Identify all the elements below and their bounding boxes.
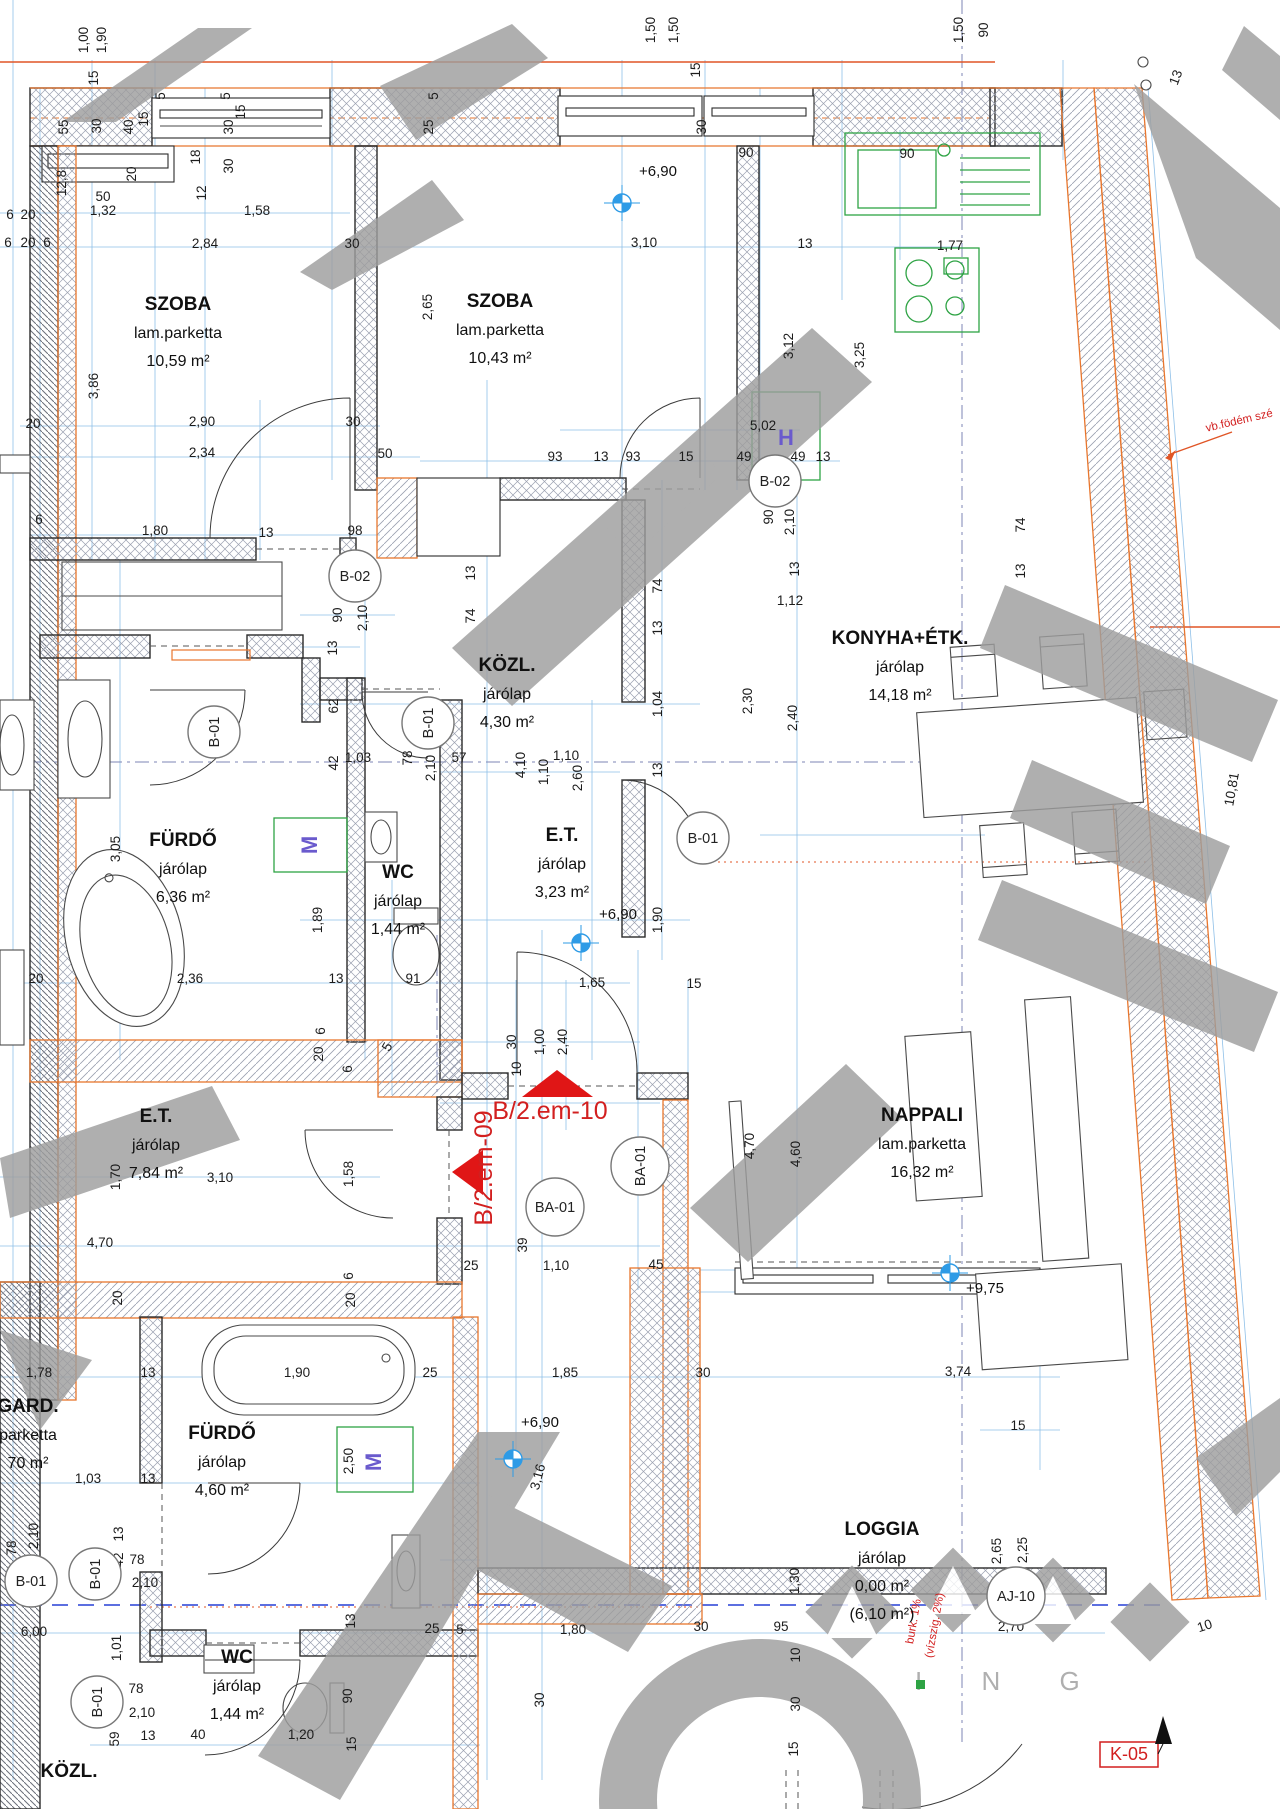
room-area: 4,30 m² bbox=[480, 714, 535, 731]
dimension-label: 1,10 bbox=[536, 759, 551, 785]
unit-label-10: B/2.em-10 bbox=[492, 1097, 607, 1125]
tag-label: B-01 bbox=[688, 831, 719, 847]
dimension-label: 13 bbox=[140, 1728, 155, 1743]
dimension-label: 20 bbox=[124, 166, 139, 181]
floor-plan-page: I N G B/2.em-10 B/2.em-09 K-05 vb.födém … bbox=[0, 0, 1280, 1809]
dimension-label: 10 bbox=[788, 1647, 803, 1662]
dimension-label: 5 bbox=[426, 92, 441, 100]
dimension-label: 93 bbox=[625, 449, 640, 464]
niche bbox=[417, 478, 500, 556]
dimension-label: 40 bbox=[121, 119, 136, 134]
dimension-label: 93 bbox=[547, 449, 562, 464]
dimension-label: 59 bbox=[107, 1731, 122, 1746]
dimension-label: 74 bbox=[650, 578, 665, 594]
dimension-label: 57 bbox=[451, 750, 466, 765]
dimension-label: 49 bbox=[736, 449, 751, 464]
dimension-label: 2,25 bbox=[1015, 1537, 1030, 1563]
dimension-label: 2,60 bbox=[570, 765, 585, 791]
room-floor: járólap bbox=[212, 1678, 261, 1695]
dimension-label: 30 bbox=[788, 1696, 803, 1711]
dimension-label: 1,03 bbox=[345, 750, 371, 765]
dimension-label: 1,03 bbox=[75, 1471, 101, 1486]
room-floor: járólap bbox=[857, 1550, 906, 1567]
level-text: +6,90 bbox=[639, 163, 677, 180]
dimension-label: 1,20 bbox=[288, 1727, 314, 1742]
room-floor: lam.parketta bbox=[456, 322, 544, 339]
dimension-label: 1,00 bbox=[76, 27, 91, 53]
dimension-label: 6 bbox=[6, 207, 14, 222]
room-name: LOGGIA bbox=[845, 1519, 920, 1540]
dimension-label: 13 bbox=[343, 1613, 358, 1628]
dimension-label: 55 bbox=[56, 119, 71, 134]
bathroom1-vanity bbox=[58, 680, 110, 798]
dimension-label: 78 bbox=[128, 1681, 143, 1696]
dimension-label: 25 bbox=[422, 1365, 437, 1380]
dimension-label: 45 bbox=[648, 1257, 663, 1272]
dimension-label: 6 bbox=[35, 512, 43, 527]
dimension-label: 30 bbox=[345, 414, 360, 429]
room-area: 0,00 m² bbox=[855, 1578, 910, 1595]
dimension-label: 1,12 bbox=[777, 593, 803, 608]
tag-label: B-01 bbox=[207, 717, 223, 748]
dimension-label: 20 bbox=[343, 1292, 358, 1307]
dimension-label: 15 bbox=[786, 1741, 801, 1756]
dimension-label: 2,10 bbox=[782, 509, 797, 535]
dimension-label: 1,85 bbox=[552, 1365, 578, 1380]
dimension-label: 30 bbox=[89, 118, 104, 133]
dimension-label: 1,90 bbox=[94, 27, 109, 53]
dimension-label: 1,32 bbox=[90, 203, 116, 218]
dimension-label: 1,10 bbox=[543, 1258, 569, 1273]
level-symbol bbox=[563, 925, 599, 961]
dimension-label: 20 bbox=[110, 1290, 125, 1305]
kitchen-stove bbox=[895, 248, 979, 332]
dimension-label: 1,10 bbox=[553, 748, 579, 763]
dimension-label: 25 bbox=[424, 1621, 439, 1636]
room-name: WC bbox=[382, 862, 414, 883]
dimension-label: 78 bbox=[4, 1540, 19, 1555]
dimension-label: 30 bbox=[344, 236, 359, 251]
dimension-label: 1,50 bbox=[666, 17, 681, 43]
tag-label: B-02 bbox=[340, 569, 371, 585]
dimension-label: 2,36 bbox=[177, 971, 203, 986]
dimension-label: 90 bbox=[340, 1688, 355, 1703]
room-name: KONYHA+ÉTK. bbox=[832, 627, 969, 649]
dimension-label: 2,10 bbox=[129, 1705, 155, 1720]
dimension-label: 90 bbox=[761, 509, 776, 524]
room-floor: járólap bbox=[373, 893, 422, 910]
window-szoba2-right bbox=[704, 96, 814, 136]
dimension-label: 2,50 bbox=[341, 1448, 356, 1474]
dimension-label: 40 bbox=[190, 1727, 205, 1742]
dimension-label: 3,10 bbox=[207, 1170, 233, 1185]
dimension-label: 3,86 bbox=[86, 373, 101, 399]
dimension-label: 6 bbox=[341, 1272, 356, 1280]
dimension-label: 91 bbox=[405, 971, 420, 986]
dimension-label: 10 bbox=[1195, 1616, 1214, 1635]
fridge-letter: H bbox=[778, 425, 794, 450]
dimension-label: 6,00 bbox=[21, 1624, 47, 1639]
room-name: KÖZL. bbox=[41, 1761, 98, 1782]
dimension-label: 13 bbox=[463, 565, 478, 580]
dimension-label: 1,80 bbox=[142, 523, 168, 538]
dimension-label: 1,80 bbox=[560, 1622, 586, 1637]
room-floor: lam.parketta bbox=[878, 1136, 966, 1153]
room-area-gross: (6,10 m²) bbox=[850, 1606, 915, 1623]
dimension-label: 13 bbox=[111, 1526, 126, 1541]
neighbor-fixtures bbox=[0, 455, 34, 1045]
dimension-label: 50 bbox=[377, 446, 392, 461]
dimension-label: 4,10 bbox=[513, 752, 528, 778]
window-szoba2-left bbox=[558, 96, 702, 136]
dimension-label: 90 bbox=[738, 145, 753, 160]
dimension-label: 98 bbox=[347, 523, 362, 538]
tag-label: B-02 bbox=[760, 474, 791, 490]
level-text: +6,90 bbox=[521, 1414, 559, 1431]
slab-edge-note: vb.födém szé bbox=[1205, 408, 1274, 435]
room-name: FÜRDŐ bbox=[149, 829, 217, 851]
room-name: SZOBA bbox=[467, 291, 534, 312]
watermark-ing-text: I N G bbox=[915, 1666, 1106, 1696]
dimension-label: 2,10 bbox=[355, 605, 370, 631]
dimension-label: 1,58 bbox=[341, 1161, 356, 1187]
dimension-label: 2,30 bbox=[740, 688, 755, 714]
room-name: FÜRDŐ bbox=[188, 1422, 256, 1444]
dimension-label: 20 bbox=[20, 207, 35, 222]
dimension-label: 74 bbox=[1013, 517, 1028, 533]
dimension-label: 13 bbox=[787, 561, 802, 576]
room-floor: járólap bbox=[875, 659, 924, 676]
dimension-label: 2,10 bbox=[423, 755, 438, 781]
dimension-label: 1,04 bbox=[650, 690, 665, 717]
dimension-label: 15 bbox=[1010, 1418, 1025, 1433]
room-name: NAPPALI bbox=[881, 1105, 963, 1126]
room-area: 7,84 m² bbox=[129, 1165, 184, 1182]
dimension-label: 25 bbox=[463, 1258, 478, 1273]
dimension-label: 13 bbox=[593, 449, 608, 464]
dimension-label: 15 bbox=[344, 1736, 359, 1751]
dimension-label: 4,60 bbox=[788, 1141, 803, 1167]
dimension-label: 42 bbox=[326, 755, 341, 770]
dimension-label: 3,25 bbox=[852, 342, 867, 368]
dimension-label: 4,70 bbox=[87, 1235, 113, 1250]
dimension-label: 5 bbox=[456, 1622, 464, 1637]
dimension-label: 2,90 bbox=[189, 414, 215, 429]
tag-label: B-01 bbox=[90, 1687, 106, 1718]
dimension-label: 6 bbox=[340, 1065, 355, 1073]
dimension-label: 30 bbox=[695, 1365, 710, 1380]
dimension-label: 30 bbox=[504, 1034, 519, 1049]
dimension-label: 13 bbox=[140, 1365, 155, 1380]
dimension-label: 95 bbox=[773, 1619, 788, 1634]
dimension-label: 5 bbox=[218, 92, 233, 100]
dimension-label: 13 bbox=[140, 1471, 155, 1486]
dimension-label: 2,84 bbox=[192, 236, 219, 251]
tag-label: B-01 bbox=[16, 1574, 47, 1590]
dimension-label: 3,12 bbox=[781, 333, 796, 359]
dimension-label: 10 bbox=[509, 1061, 524, 1076]
dimension-label: 6 bbox=[43, 235, 51, 250]
room-area: 1,44 m² bbox=[371, 921, 426, 938]
room-area: 14,18 m² bbox=[868, 687, 932, 704]
dimension-label: 90 bbox=[899, 146, 914, 161]
dimension-label: 62 bbox=[326, 698, 341, 713]
dimension-label: 2,65 bbox=[989, 1538, 1004, 1564]
dimension-label: 30 bbox=[221, 158, 236, 173]
unit-label-09: B/2.em-09 bbox=[470, 1110, 498, 1225]
dimension-label: 1,77 bbox=[937, 238, 963, 253]
room-floor: parketta bbox=[0, 1427, 57, 1444]
dimension-label: 18 bbox=[188, 149, 203, 164]
dimension-label: 13 bbox=[1013, 563, 1028, 578]
dimension-label: 15 bbox=[688, 62, 703, 77]
dimension-label: 1,90 bbox=[650, 907, 665, 933]
tag-label: AJ-10 bbox=[997, 1589, 1035, 1605]
dimension-label: 10,81 bbox=[1221, 771, 1242, 807]
dimension-label: 12,8 bbox=[54, 170, 69, 196]
tag-label: BA-01 bbox=[633, 1146, 649, 1186]
dimension-label: 13 bbox=[815, 449, 830, 464]
wc1-sink bbox=[365, 812, 397, 862]
dimension-label: 15 bbox=[678, 449, 693, 464]
dimension-label: 1,58 bbox=[244, 203, 270, 218]
room-area: 1,44 m² bbox=[210, 1706, 265, 1723]
washer2-letter: M bbox=[361, 1453, 386, 1471]
room-floor: járólap bbox=[158, 861, 207, 878]
k05-arrow bbox=[1155, 1716, 1172, 1744]
level-text: +9,75 bbox=[966, 1280, 1004, 1297]
dimension-label: 1,65 bbox=[579, 975, 605, 990]
dimension-label: 1,00 bbox=[532, 1029, 547, 1055]
room-area: 10,59 m² bbox=[146, 353, 210, 370]
dimension-label: 2,40 bbox=[555, 1029, 570, 1055]
dimension-label: 3,74 bbox=[945, 1364, 972, 1379]
dimension-label: 13 bbox=[328, 971, 343, 986]
dimension-label: 6 bbox=[313, 1027, 328, 1035]
dimension-label: 13 bbox=[1166, 68, 1185, 87]
dimension-label: 25 bbox=[421, 119, 436, 134]
dimension-label: 20 bbox=[20, 235, 35, 250]
room-floor: járólap bbox=[197, 1454, 246, 1471]
tag-label: B-01 bbox=[421, 708, 437, 739]
dimension-label: 13 bbox=[650, 762, 665, 777]
dimension-label: 5,02 bbox=[750, 418, 776, 433]
dimension-label: 39 bbox=[515, 1237, 530, 1252]
dimension-label: 78 bbox=[400, 750, 415, 765]
dimension-label: 6 bbox=[4, 235, 12, 250]
dimension-label: 1,01 bbox=[109, 1635, 124, 1661]
dimension-label: 1,89 bbox=[310, 907, 325, 933]
room-floor: járólap bbox=[482, 686, 531, 703]
room-area: 4,60 m² bbox=[195, 1482, 250, 1499]
room-floor: járólap bbox=[131, 1137, 180, 1154]
tag-label: B-01 bbox=[88, 1559, 104, 1590]
room-floor: lam.parketta bbox=[134, 325, 222, 342]
room-area: 6,36 m² bbox=[156, 889, 211, 906]
level-text: +6,90 bbox=[599, 906, 637, 923]
dimension-label: 1,50 bbox=[951, 17, 966, 43]
room-name: WC bbox=[221, 1647, 253, 1668]
dimension-label: 13 bbox=[258, 525, 273, 540]
dimension-label: 1,30 bbox=[787, 1568, 802, 1594]
room-name: E.T. bbox=[546, 825, 579, 846]
dimension-label: 78 bbox=[129, 1552, 144, 1567]
washer1-letter: M bbox=[297, 836, 322, 854]
dimension-label: 20 bbox=[25, 416, 40, 431]
entrance-arrow-10 bbox=[522, 1070, 593, 1097]
dimension-label: 3,10 bbox=[631, 235, 657, 250]
level-symbol bbox=[604, 185, 640, 221]
room-name: E.T. bbox=[140, 1106, 173, 1127]
dimension-label: 20 bbox=[28, 971, 43, 986]
dimension-label: 2,10 bbox=[132, 1575, 158, 1590]
k05-label: K-05 bbox=[1110, 1744, 1148, 1764]
dimension-label: 50 bbox=[95, 189, 110, 204]
tag-label: BA-01 bbox=[535, 1200, 575, 1216]
dimension-label: 2,10 bbox=[26, 1523, 41, 1549]
dimension-label: 3,05 bbox=[108, 836, 123, 862]
dimension-label: 2,40 bbox=[785, 705, 800, 731]
dimension-label: 13 bbox=[797, 236, 812, 251]
dimension-label: 4,70 bbox=[742, 1133, 757, 1159]
dimension-label: 1,78 bbox=[26, 1365, 52, 1380]
dimension-label: 2,65 bbox=[420, 294, 435, 320]
room-name: SZOBA bbox=[145, 294, 212, 315]
room-floor: járólap bbox=[537, 856, 586, 873]
dimension-label: 2,34 bbox=[189, 445, 216, 460]
dimension-label: 30 bbox=[532, 1692, 547, 1707]
dimension-label: 74 bbox=[463, 608, 478, 624]
dimension-label: 30 bbox=[693, 1619, 708, 1634]
room-name: KÖZL. bbox=[479, 655, 536, 676]
floor-plan-drawing: I N G B/2.em-10 B/2.em-09 K-05 vb.födém … bbox=[0, 0, 1280, 1809]
dimension-label: 90 bbox=[976, 22, 991, 37]
dimension-label: 20 bbox=[311, 1046, 326, 1061]
dimension-label: 15 bbox=[686, 976, 701, 991]
dimension-label: 15 bbox=[86, 70, 101, 85]
dimension-label: 13 bbox=[650, 620, 665, 635]
dimension-label: 1,70 bbox=[108, 1164, 123, 1190]
room-name: GARD. bbox=[0, 1396, 59, 1417]
room-area: 3,23 m² bbox=[535, 884, 590, 901]
dimension-label: 90 bbox=[330, 607, 345, 622]
dimension-label: 1,90 bbox=[284, 1365, 310, 1380]
room-area: 16,32 m² bbox=[890, 1164, 954, 1181]
dimension-label: 5 bbox=[153, 92, 168, 100]
slope-marker bbox=[916, 1680, 925, 1689]
dimension-label: 15 bbox=[233, 104, 248, 119]
room-area: 10,43 m² bbox=[468, 350, 532, 367]
dimension-label: 13 bbox=[325, 640, 340, 655]
dimension-label: 15 bbox=[136, 111, 151, 126]
dimension-label: 1,50 bbox=[643, 17, 658, 43]
dimension-label: 30 bbox=[221, 119, 236, 134]
dimension-label: 30 bbox=[694, 119, 709, 134]
room-area: 70 m² bbox=[8, 1455, 50, 1472]
dimension-label: 12 bbox=[194, 185, 209, 200]
